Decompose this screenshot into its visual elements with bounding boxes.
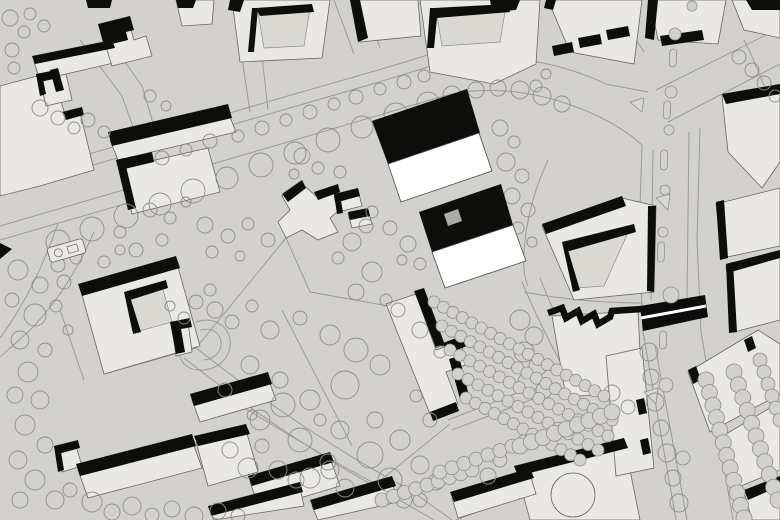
median-capsule <box>659 331 667 349</box>
median-dot <box>676 451 690 465</box>
median-capsule <box>660 150 668 170</box>
hedge-shrub <box>598 390 610 402</box>
median-dot <box>665 86 677 98</box>
hedge-shrub <box>574 454 586 466</box>
median-dot <box>658 227 668 237</box>
site-plan-screenshot <box>0 0 780 520</box>
median-dot <box>660 185 670 195</box>
hedge-shrub <box>602 430 614 442</box>
median-dot <box>664 125 674 135</box>
median-dot <box>659 378 673 392</box>
median-capsule <box>657 242 665 262</box>
median-dot <box>663 287 679 303</box>
median-capsule <box>669 49 677 67</box>
median-dot <box>687 1 697 11</box>
hedge-shrub <box>592 444 604 456</box>
building-shadow <box>86 0 112 8</box>
median-dot <box>669 28 681 40</box>
building-shadow <box>176 0 196 8</box>
hedge-shrub <box>604 404 620 420</box>
site-plan-map <box>0 0 780 520</box>
median-capsule <box>663 101 671 119</box>
